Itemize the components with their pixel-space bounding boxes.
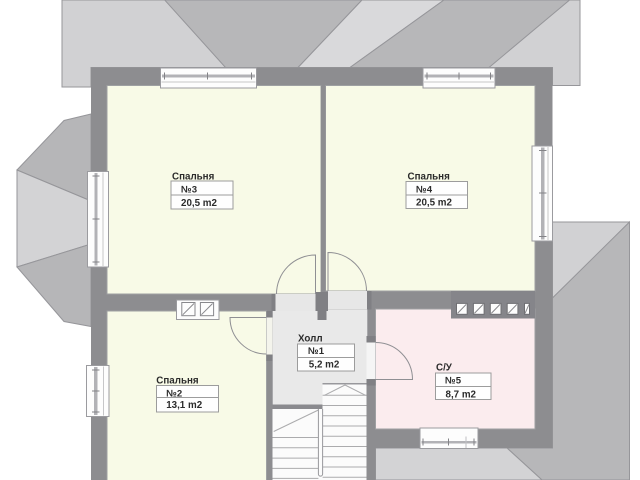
svg-text:С/У: С/У — [436, 362, 453, 373]
svg-text:№1: №1 — [308, 346, 325, 357]
svg-text:№2: №2 — [166, 389, 182, 400]
svg-text:№3: №3 — [181, 185, 197, 196]
svg-text:№4: №4 — [416, 185, 433, 196]
svg-text:13,1 m2: 13,1 m2 — [166, 400, 203, 411]
svg-text:20,5 m2: 20,5 m2 — [416, 198, 453, 209]
svg-text:5,2 m2: 5,2 m2 — [309, 359, 340, 370]
svg-text:№5: №5 — [445, 375, 462, 386]
svg-text:Спальня: Спальня — [408, 172, 451, 183]
svg-text:20,5 m2: 20,5 m2 — [181, 198, 218, 209]
svg-text:Холл: Холл — [298, 334, 323, 345]
svg-text:8,7 m2: 8,7 m2 — [446, 389, 477, 400]
